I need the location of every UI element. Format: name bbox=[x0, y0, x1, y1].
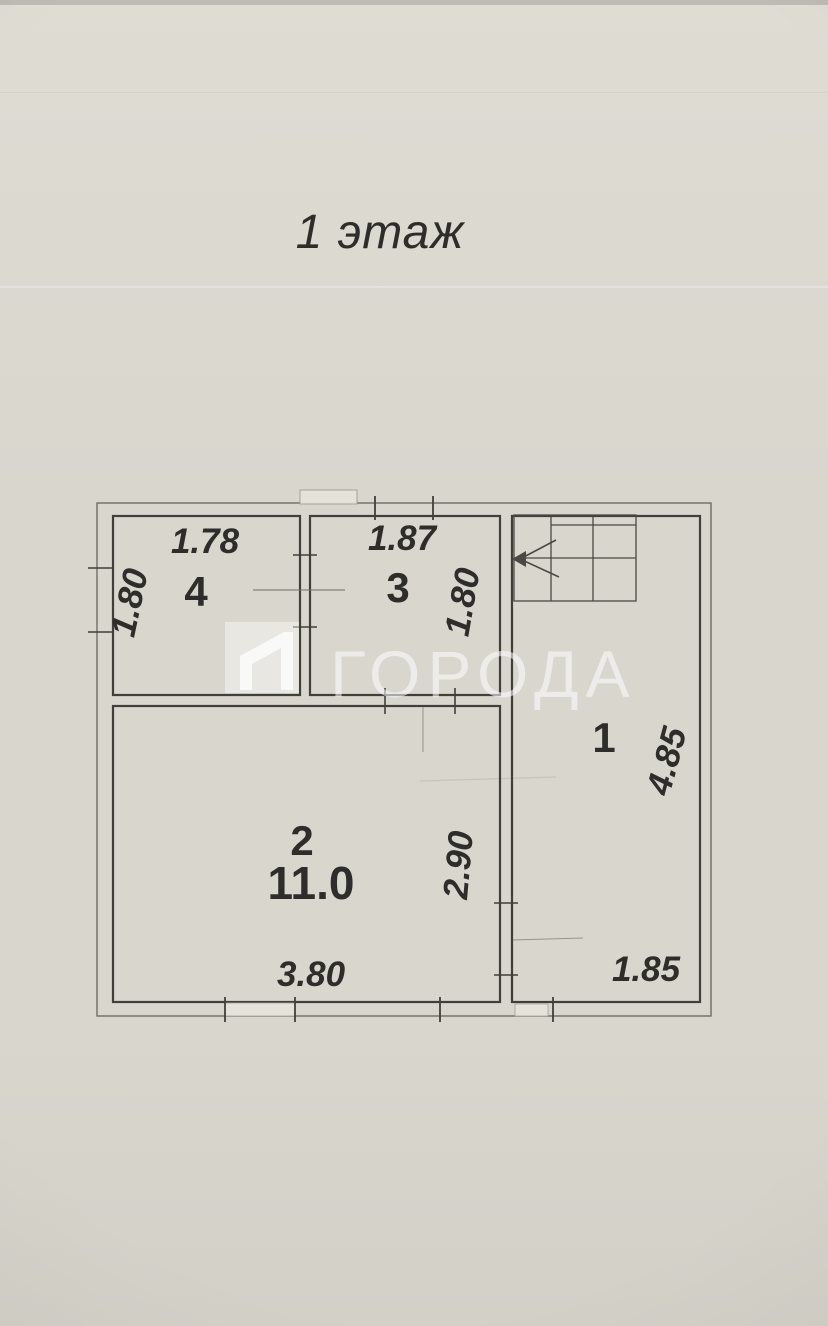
room-2-height-dim: 2.90 bbox=[436, 829, 481, 902]
room-4-height-dim: 1.80 bbox=[104, 565, 156, 640]
room-4-number: 4 bbox=[184, 568, 208, 615]
floor-plan-drawing: 1 этаж bbox=[0, 0, 828, 1326]
room-2-area: 11.0 bbox=[268, 857, 355, 909]
floor-title: 1 этаж bbox=[296, 206, 466, 259]
room-3-number: 3 bbox=[386, 564, 409, 611]
watermark: ГОРОДА bbox=[225, 622, 637, 711]
paper-crease bbox=[420, 777, 556, 781]
room-3-width-dim: 1.87 bbox=[368, 519, 438, 558]
room-2-width-dim: 3.80 bbox=[277, 955, 346, 994]
room-3-height-dim: 1.80 bbox=[438, 565, 488, 639]
room-1-width-dim: 1.85 bbox=[612, 950, 681, 989]
watermark-text: ГОРОДА bbox=[330, 637, 637, 711]
room-1-height-dim: 4.85 bbox=[639, 723, 695, 800]
window-mark-room2-bottom bbox=[225, 997, 440, 1022]
door-opening-room2-room1 bbox=[494, 903, 583, 975]
window-mark-room1-bottom bbox=[515, 997, 553, 1022]
room-4-width-dim: 1.78 bbox=[171, 522, 240, 561]
room-1-number: 1 bbox=[592, 714, 615, 761]
staircase bbox=[512, 515, 636, 601]
